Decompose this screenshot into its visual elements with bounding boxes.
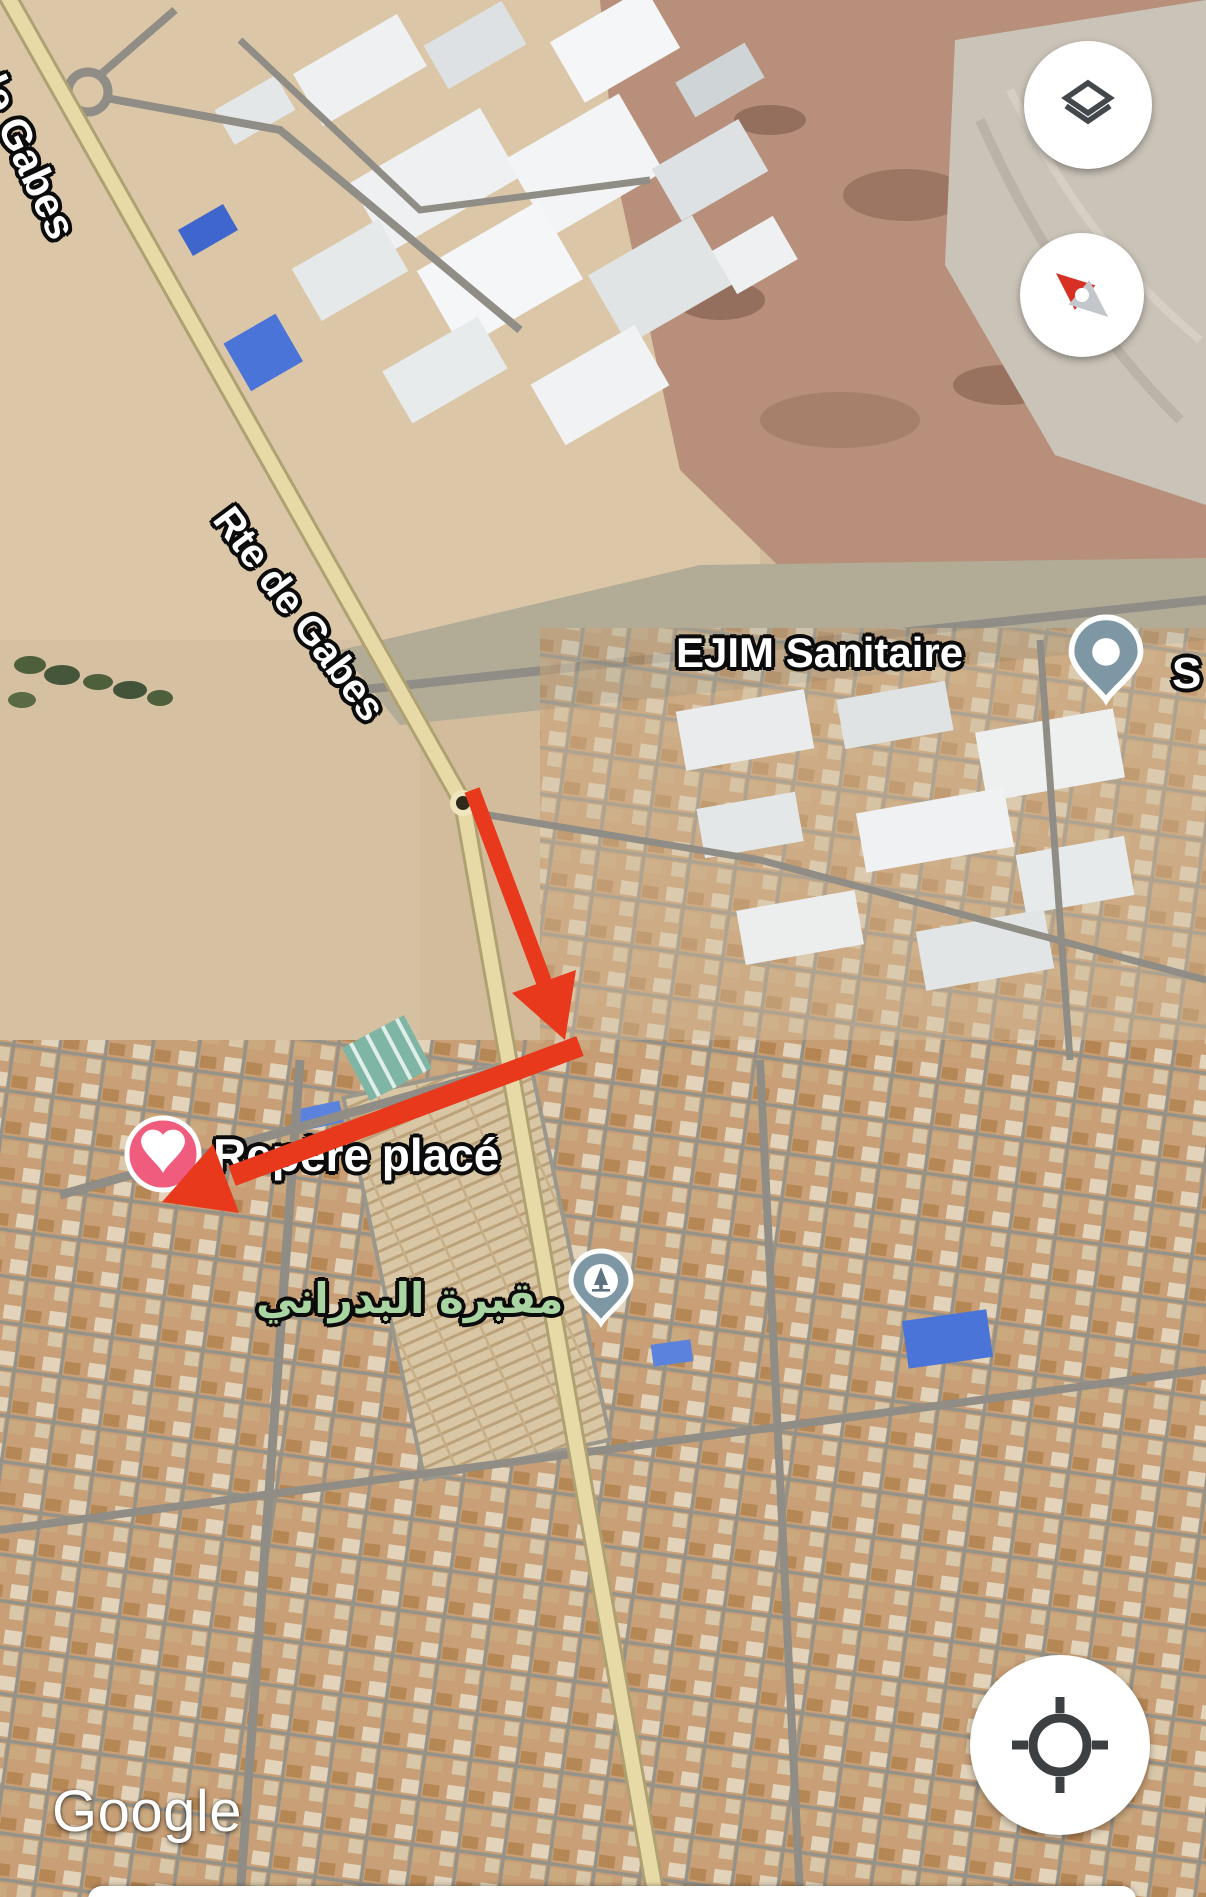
layers-button[interactable] bbox=[1024, 41, 1152, 169]
poi-label-truncated[interactable]: S bbox=[1172, 652, 1201, 696]
google-watermark: Google bbox=[52, 1778, 242, 1845]
compass-icon bbox=[1040, 253, 1124, 337]
bottom-sheet-handle[interactable] bbox=[88, 1886, 1136, 1897]
compass-button[interactable] bbox=[1020, 233, 1144, 357]
layers-icon bbox=[1056, 73, 1120, 137]
cemetery-label[interactable]: مقبرة البدراني bbox=[256, 1278, 563, 1320]
dropped-pin-label[interactable]: Repère placé bbox=[213, 1132, 499, 1178]
poi-label-ejim-sanitaire[interactable]: EJIM Sanitaire bbox=[676, 632, 963, 674]
my-location-icon bbox=[1008, 1693, 1112, 1797]
my-location-button[interactable] bbox=[970, 1655, 1150, 1835]
google-maps-screen: de Gabes Rte de Gabes EJIM Sanitaire S R… bbox=[0, 0, 1206, 1897]
